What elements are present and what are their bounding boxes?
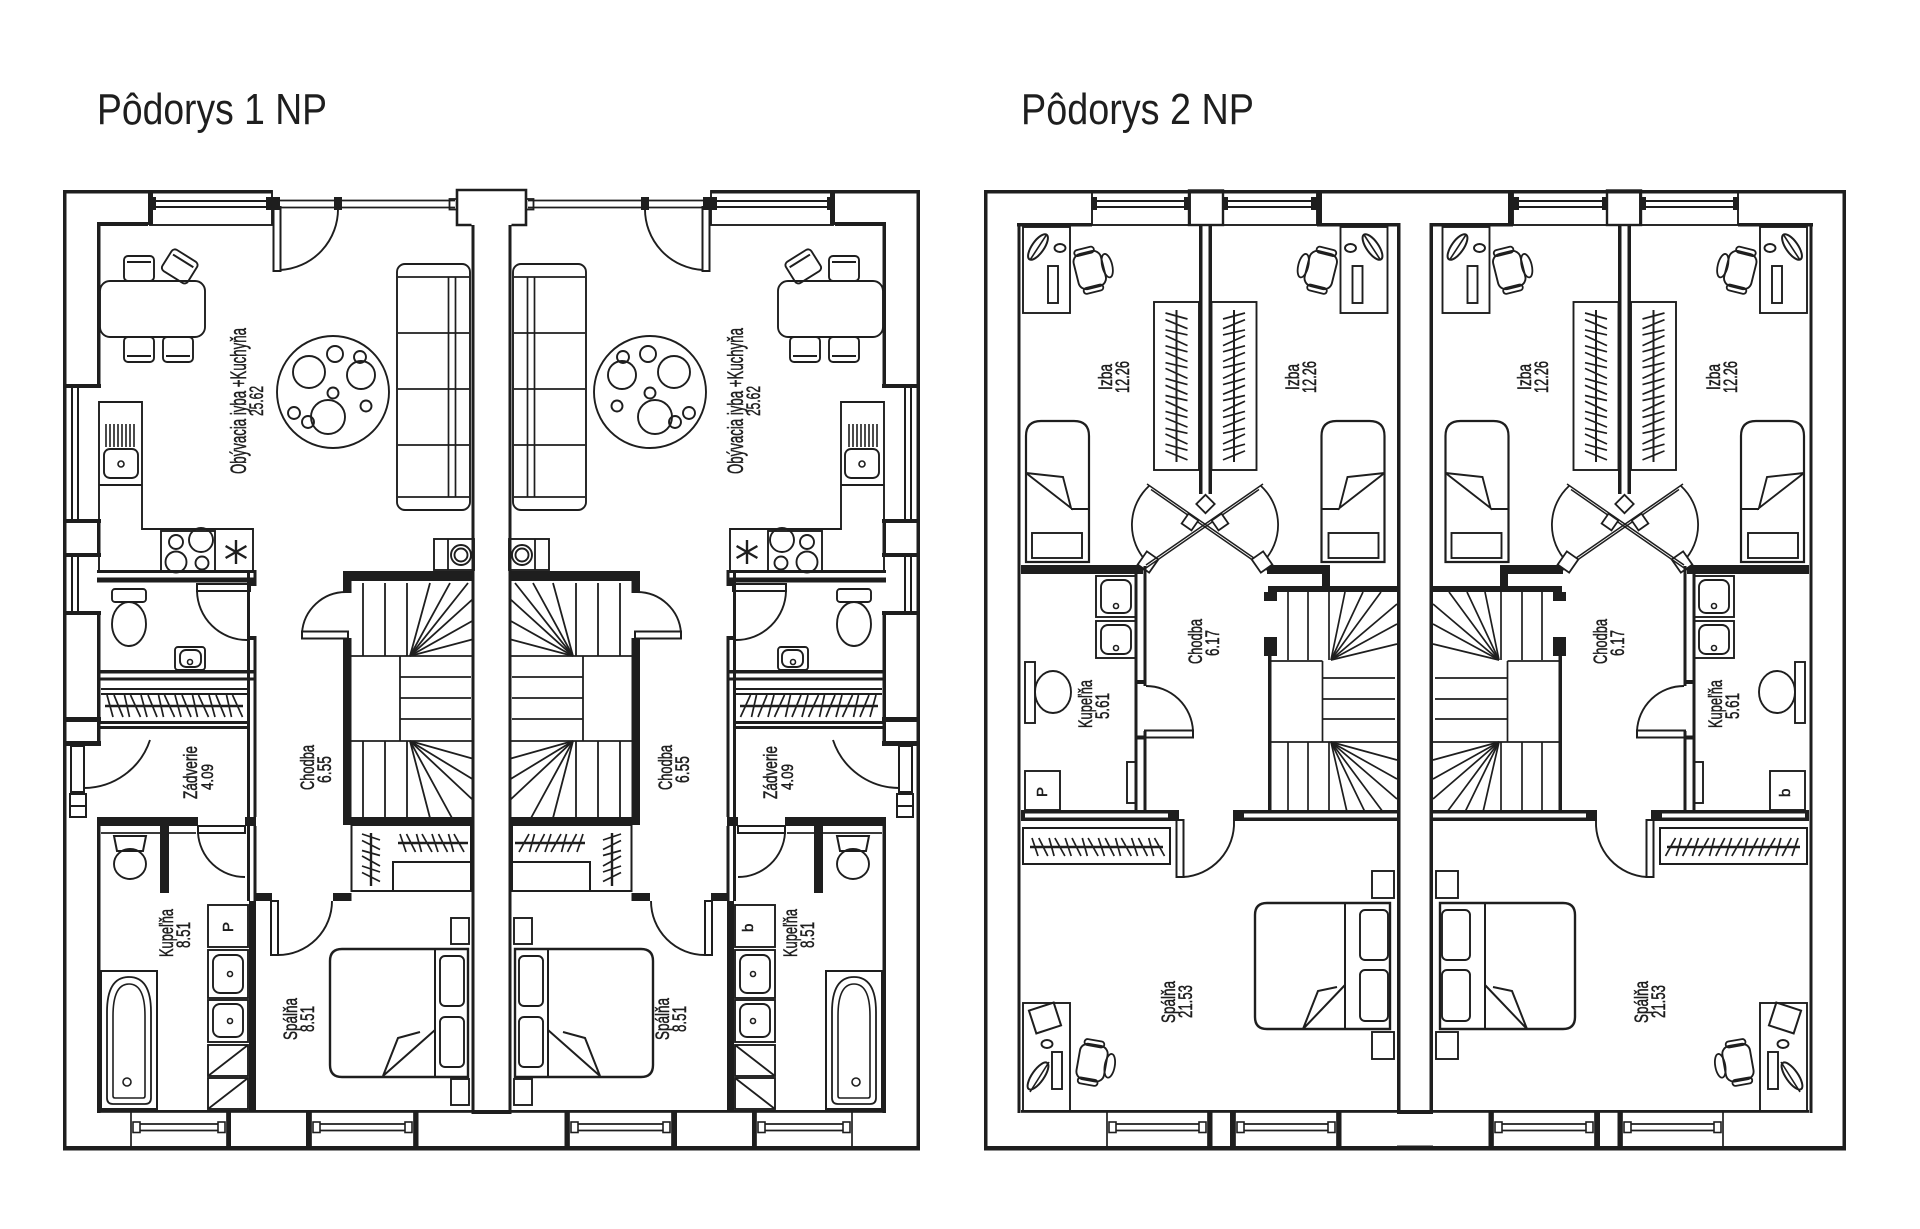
svg-text:4.09: 4.09	[778, 764, 797, 790]
svg-text:5.61: 5.61	[1723, 693, 1744, 719]
svg-text:25.62: 25.62	[744, 386, 765, 416]
svg-text:Pôdorys 2 NP: Pôdorys 2 NP	[1021, 85, 1254, 134]
svg-text:12.26: 12.26	[1300, 361, 1321, 393]
svg-text:21.53: 21.53	[1176, 985, 1197, 1018]
svg-text:25.62: 25.62	[247, 386, 268, 416]
svg-text:6.17: 6.17	[1608, 630, 1629, 656]
svg-text:12.26: 12.26	[1113, 361, 1134, 393]
svg-text:6.55: 6.55	[673, 756, 694, 783]
svg-text:12.26: 12.26	[1721, 361, 1742, 393]
svg-text:4.09: 4.09	[198, 764, 217, 790]
svg-text:8.51: 8.51	[174, 922, 195, 948]
svg-text:21.53: 21.53	[1649, 985, 1670, 1018]
svg-text:6.55: 6.55	[315, 756, 336, 783]
svg-text:P: P	[220, 922, 237, 932]
svg-text:5.61: 5.61	[1093, 693, 1114, 719]
svg-text:b: b	[740, 924, 757, 932]
svg-text:8.51: 8.51	[798, 922, 819, 948]
svg-text:6.17: 6.17	[1203, 630, 1224, 656]
svg-text:P: P	[1034, 787, 1051, 797]
svg-text:b: b	[1777, 789, 1794, 797]
svg-text:12.26: 12.26	[1532, 361, 1553, 393]
svg-text:Pôdorys 1 NP: Pôdorys 1 NP	[97, 85, 327, 134]
svg-text:8.51: 8.51	[298, 1006, 319, 1032]
svg-text:8.51: 8.51	[670, 1006, 691, 1032]
